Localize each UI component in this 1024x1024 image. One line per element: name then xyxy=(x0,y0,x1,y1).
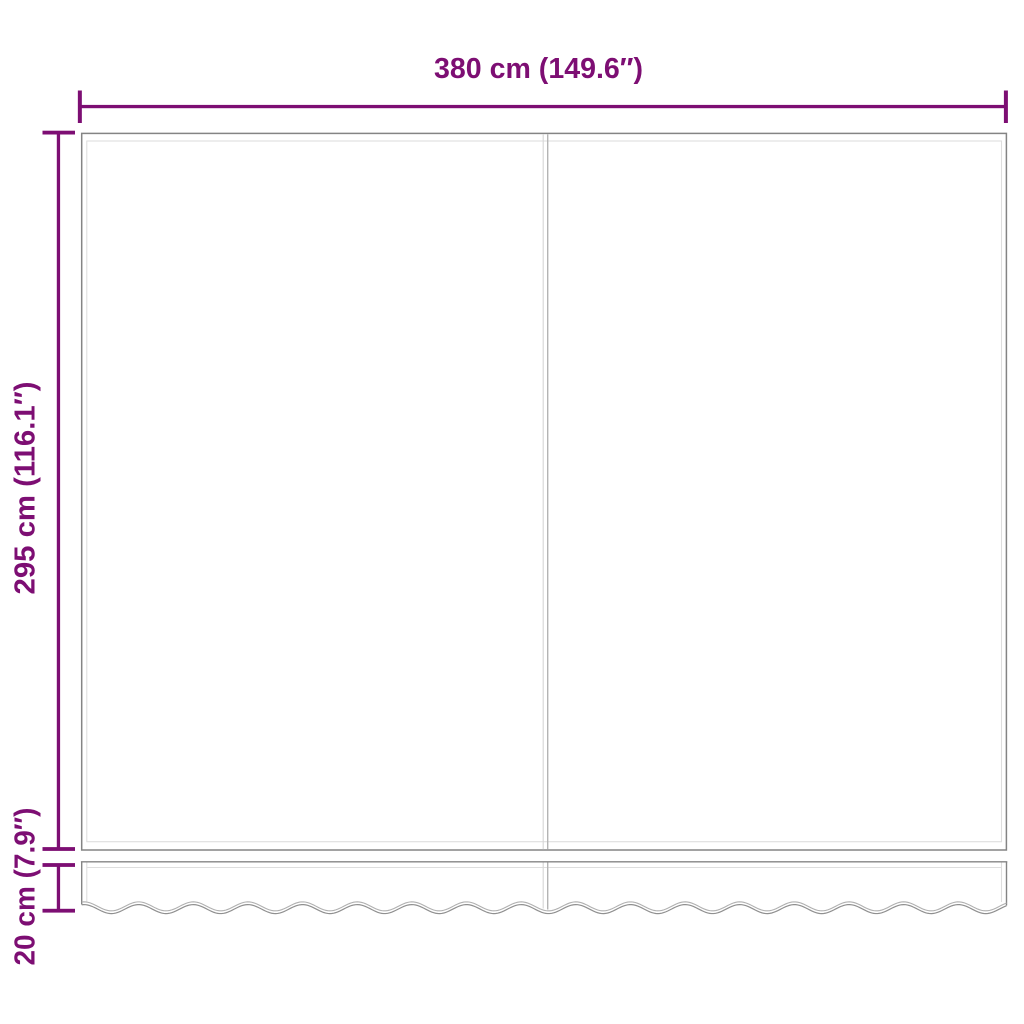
svg-text:20 cm (7.9″): 20 cm (7.9″) xyxy=(10,808,42,966)
svg-text:380 cm (149.6″): 380 cm (149.6″) xyxy=(434,53,643,85)
svg-text:295 cm (116.1″): 295 cm (116.1″) xyxy=(10,382,42,595)
